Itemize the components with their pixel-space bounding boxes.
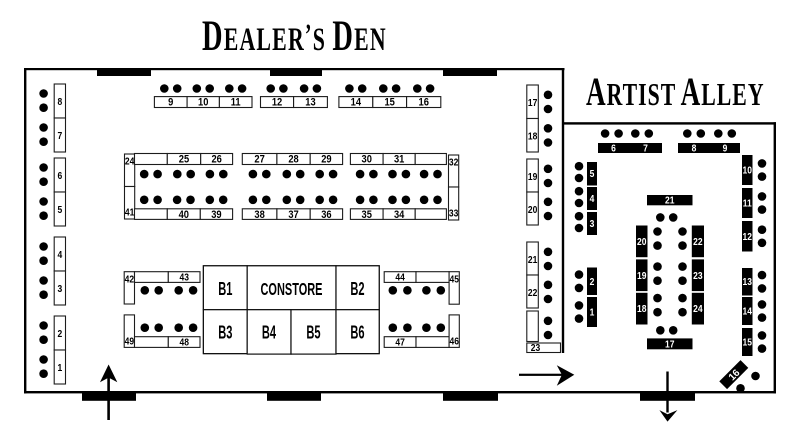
- svg-text:20: 20: [528, 204, 537, 215]
- svg-text:4: 4: [58, 249, 63, 260]
- svg-text:12: 12: [272, 97, 283, 109]
- svg-text:3: 3: [58, 283, 63, 294]
- svg-text:24: 24: [693, 304, 703, 315]
- svg-text:6: 6: [611, 143, 616, 154]
- svg-text:B1: B1: [218, 279, 233, 300]
- svg-text:18: 18: [528, 131, 537, 142]
- svg-text:2: 2: [58, 328, 63, 339]
- svg-text:14: 14: [351, 97, 362, 109]
- svg-text:36: 36: [321, 209, 332, 221]
- svg-text:11: 11: [743, 198, 752, 209]
- svg-text:9: 9: [723, 143, 728, 154]
- svg-text:23: 23: [531, 343, 540, 354]
- svg-text:19: 19: [528, 171, 537, 182]
- svg-text:22: 22: [528, 287, 537, 298]
- svg-text:29: 29: [321, 154, 332, 166]
- svg-text:40: 40: [179, 209, 190, 221]
- svg-text:22: 22: [693, 236, 702, 247]
- svg-text:33: 33: [449, 208, 458, 219]
- svg-text:10: 10: [743, 165, 752, 176]
- svg-text:47: 47: [395, 337, 404, 348]
- svg-text:8: 8: [58, 96, 63, 107]
- svg-text:46: 46: [449, 336, 458, 347]
- svg-text:10: 10: [198, 97, 209, 109]
- svg-text:18: 18: [637, 304, 646, 315]
- svg-text:B4: B4: [262, 323, 277, 344]
- svg-text:15: 15: [743, 337, 752, 348]
- svg-text:2: 2: [590, 276, 595, 287]
- svg-text:35: 35: [362, 209, 373, 221]
- svg-text:31: 31: [394, 154, 405, 166]
- svg-text:38: 38: [254, 209, 265, 221]
- svg-text:4: 4: [590, 193, 595, 204]
- svg-text:1: 1: [590, 307, 595, 318]
- svg-text:41: 41: [125, 207, 134, 218]
- svg-text:9: 9: [168, 97, 173, 109]
- svg-text:17: 17: [665, 339, 674, 350]
- svg-text:13: 13: [743, 277, 752, 288]
- svg-text:7: 7: [58, 130, 63, 141]
- svg-text:28: 28: [288, 154, 299, 166]
- svg-text:32: 32: [449, 157, 458, 168]
- svg-text:16: 16: [419, 97, 430, 109]
- svg-text:48: 48: [179, 337, 188, 348]
- svg-text:1: 1: [58, 362, 63, 373]
- svg-text:26: 26: [211, 154, 222, 166]
- svg-text:13: 13: [305, 97, 316, 109]
- svg-text:B5: B5: [306, 323, 321, 344]
- svg-text:20: 20: [637, 236, 646, 247]
- svg-text:44: 44: [395, 272, 405, 283]
- svg-text:23: 23: [693, 270, 702, 281]
- svg-text:B2: B2: [350, 279, 364, 300]
- svg-text:11: 11: [231, 97, 241, 109]
- svg-text:12: 12: [743, 231, 752, 242]
- svg-text:7: 7: [643, 143, 648, 154]
- svg-text:37: 37: [288, 209, 299, 221]
- svg-text:15: 15: [385, 97, 396, 109]
- svg-text:30: 30: [362, 154, 373, 166]
- svg-text:14: 14: [743, 306, 753, 317]
- svg-text:39: 39: [211, 209, 222, 221]
- svg-text:21: 21: [665, 195, 674, 206]
- svg-text:27: 27: [254, 154, 265, 166]
- svg-text:5: 5: [58, 204, 63, 215]
- svg-text:3: 3: [590, 218, 595, 229]
- svg-text:49: 49: [125, 336, 134, 347]
- svg-text:5: 5: [590, 169, 595, 180]
- svg-text:ARTIST ALLEY: ARTIST ALLEY: [586, 71, 765, 114]
- svg-text:25: 25: [179, 154, 190, 166]
- svg-text:19: 19: [637, 270, 646, 281]
- svg-text:45: 45: [449, 274, 458, 285]
- svg-text:43: 43: [179, 272, 188, 283]
- svg-text:B6: B6: [350, 323, 364, 344]
- svg-text:8: 8: [692, 143, 697, 154]
- svg-text:CONSTORE: CONSTORE: [261, 281, 323, 300]
- svg-text:34: 34: [394, 209, 405, 221]
- svg-text:42: 42: [125, 274, 134, 285]
- svg-text:B3: B3: [218, 323, 232, 344]
- svg-text:21: 21: [528, 254, 537, 265]
- svg-text:24: 24: [125, 156, 135, 167]
- svg-text:6: 6: [58, 170, 63, 181]
- svg-text:17: 17: [528, 97, 537, 108]
